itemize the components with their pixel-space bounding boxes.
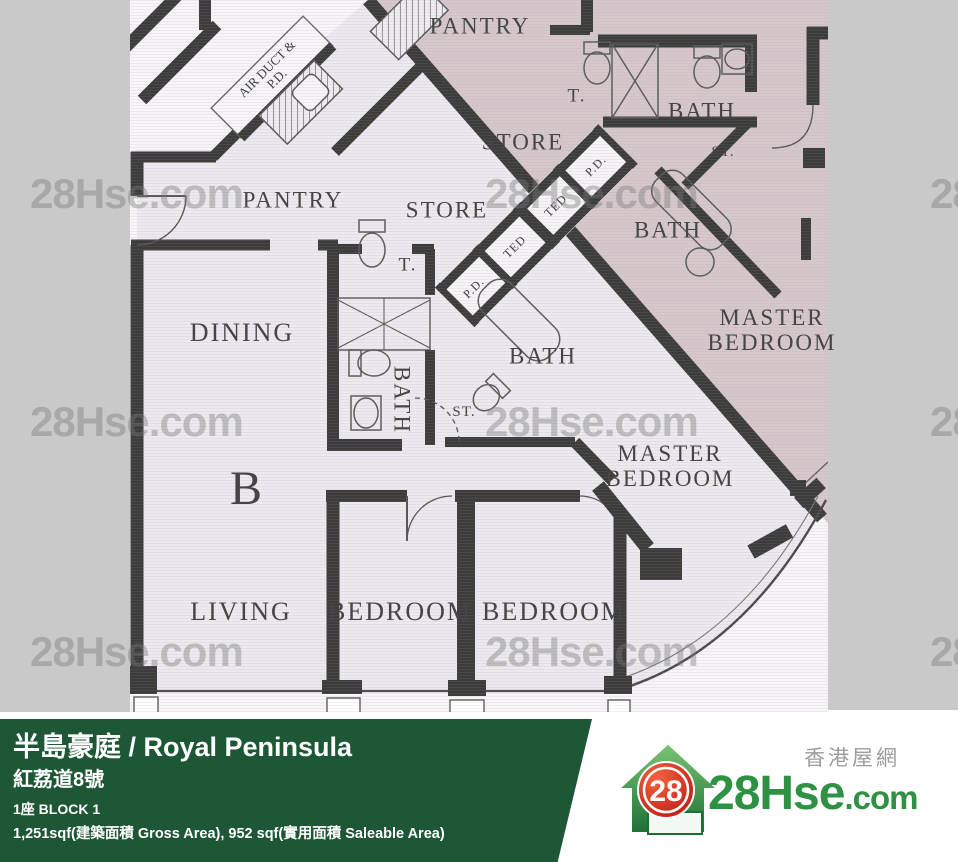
- room-label: STORE: [482, 131, 564, 156]
- room-label: BATH: [634, 219, 702, 244]
- room-label: B: [230, 463, 262, 515]
- room-label: PANTRY: [243, 189, 344, 214]
- brand-main: 28Hse: [708, 767, 844, 820]
- room-label: BEDROOM: [482, 598, 626, 626]
- watermark-text: 28Hse.com: [485, 628, 698, 676]
- room-label: ST.: [452, 404, 475, 420]
- property-info-bar: 半島豪庭 / Royal Peninsula 紅荔道8號 1座 BLOCK 1 …: [0, 719, 592, 862]
- room-label: DINING: [190, 319, 294, 347]
- room-label: BATH: [668, 100, 736, 125]
- floorplan-page: PANTRYT.BATHST.STOREBATHMASTER BEDROOMAI…: [0, 0, 958, 862]
- brand-suffix: .com: [844, 779, 917, 816]
- watermark-text: 28Hse.com: [30, 170, 243, 218]
- watermark-text: 28Hse.com: [930, 398, 958, 446]
- watermark-text: 28Hse.com: [30, 628, 243, 676]
- room-label: STORE: [406, 199, 488, 224]
- property-block: 1座 BLOCK 1: [13, 799, 100, 819]
- room-label: T.: [399, 256, 418, 277]
- gray-margin-left: [0, 0, 130, 718]
- 28hse-logo: 28 香港屋網 28Hse.com: [608, 738, 938, 848]
- room-label: BATH: [509, 345, 577, 370]
- svg-text:28: 28: [649, 775, 682, 808]
- watermark-text: 28Hse.com: [930, 628, 958, 676]
- watermark-text: 28Hse.com: [485, 398, 698, 446]
- room-label: LIVING: [190, 598, 292, 626]
- property-title: 半島豪庭 / Royal Peninsula: [13, 725, 352, 764]
- room-label: MASTER BEDROOM: [692, 306, 852, 356]
- watermark-text: 28Hse.com: [30, 398, 243, 446]
- watermark-text: 28Hse.com: [930, 170, 958, 218]
- room-label: ST.: [711, 144, 734, 160]
- room-label: MASTER BEDROOM: [590, 442, 750, 492]
- property-area: 1,251sqf(建築面積 Gross Area), 952 sqf(實用面積 …: [13, 822, 445, 843]
- room-label: BATH: [389, 366, 414, 434]
- watermark-text: 28Hse.com: [485, 170, 698, 218]
- room-label: PANTRY: [430, 15, 531, 40]
- room-label: BEDROOM: [328, 598, 472, 626]
- room-label: T.: [568, 87, 587, 108]
- property-address: 紅荔道8號: [13, 763, 104, 792]
- brand-wordmark: 28Hse.com: [708, 766, 917, 821]
